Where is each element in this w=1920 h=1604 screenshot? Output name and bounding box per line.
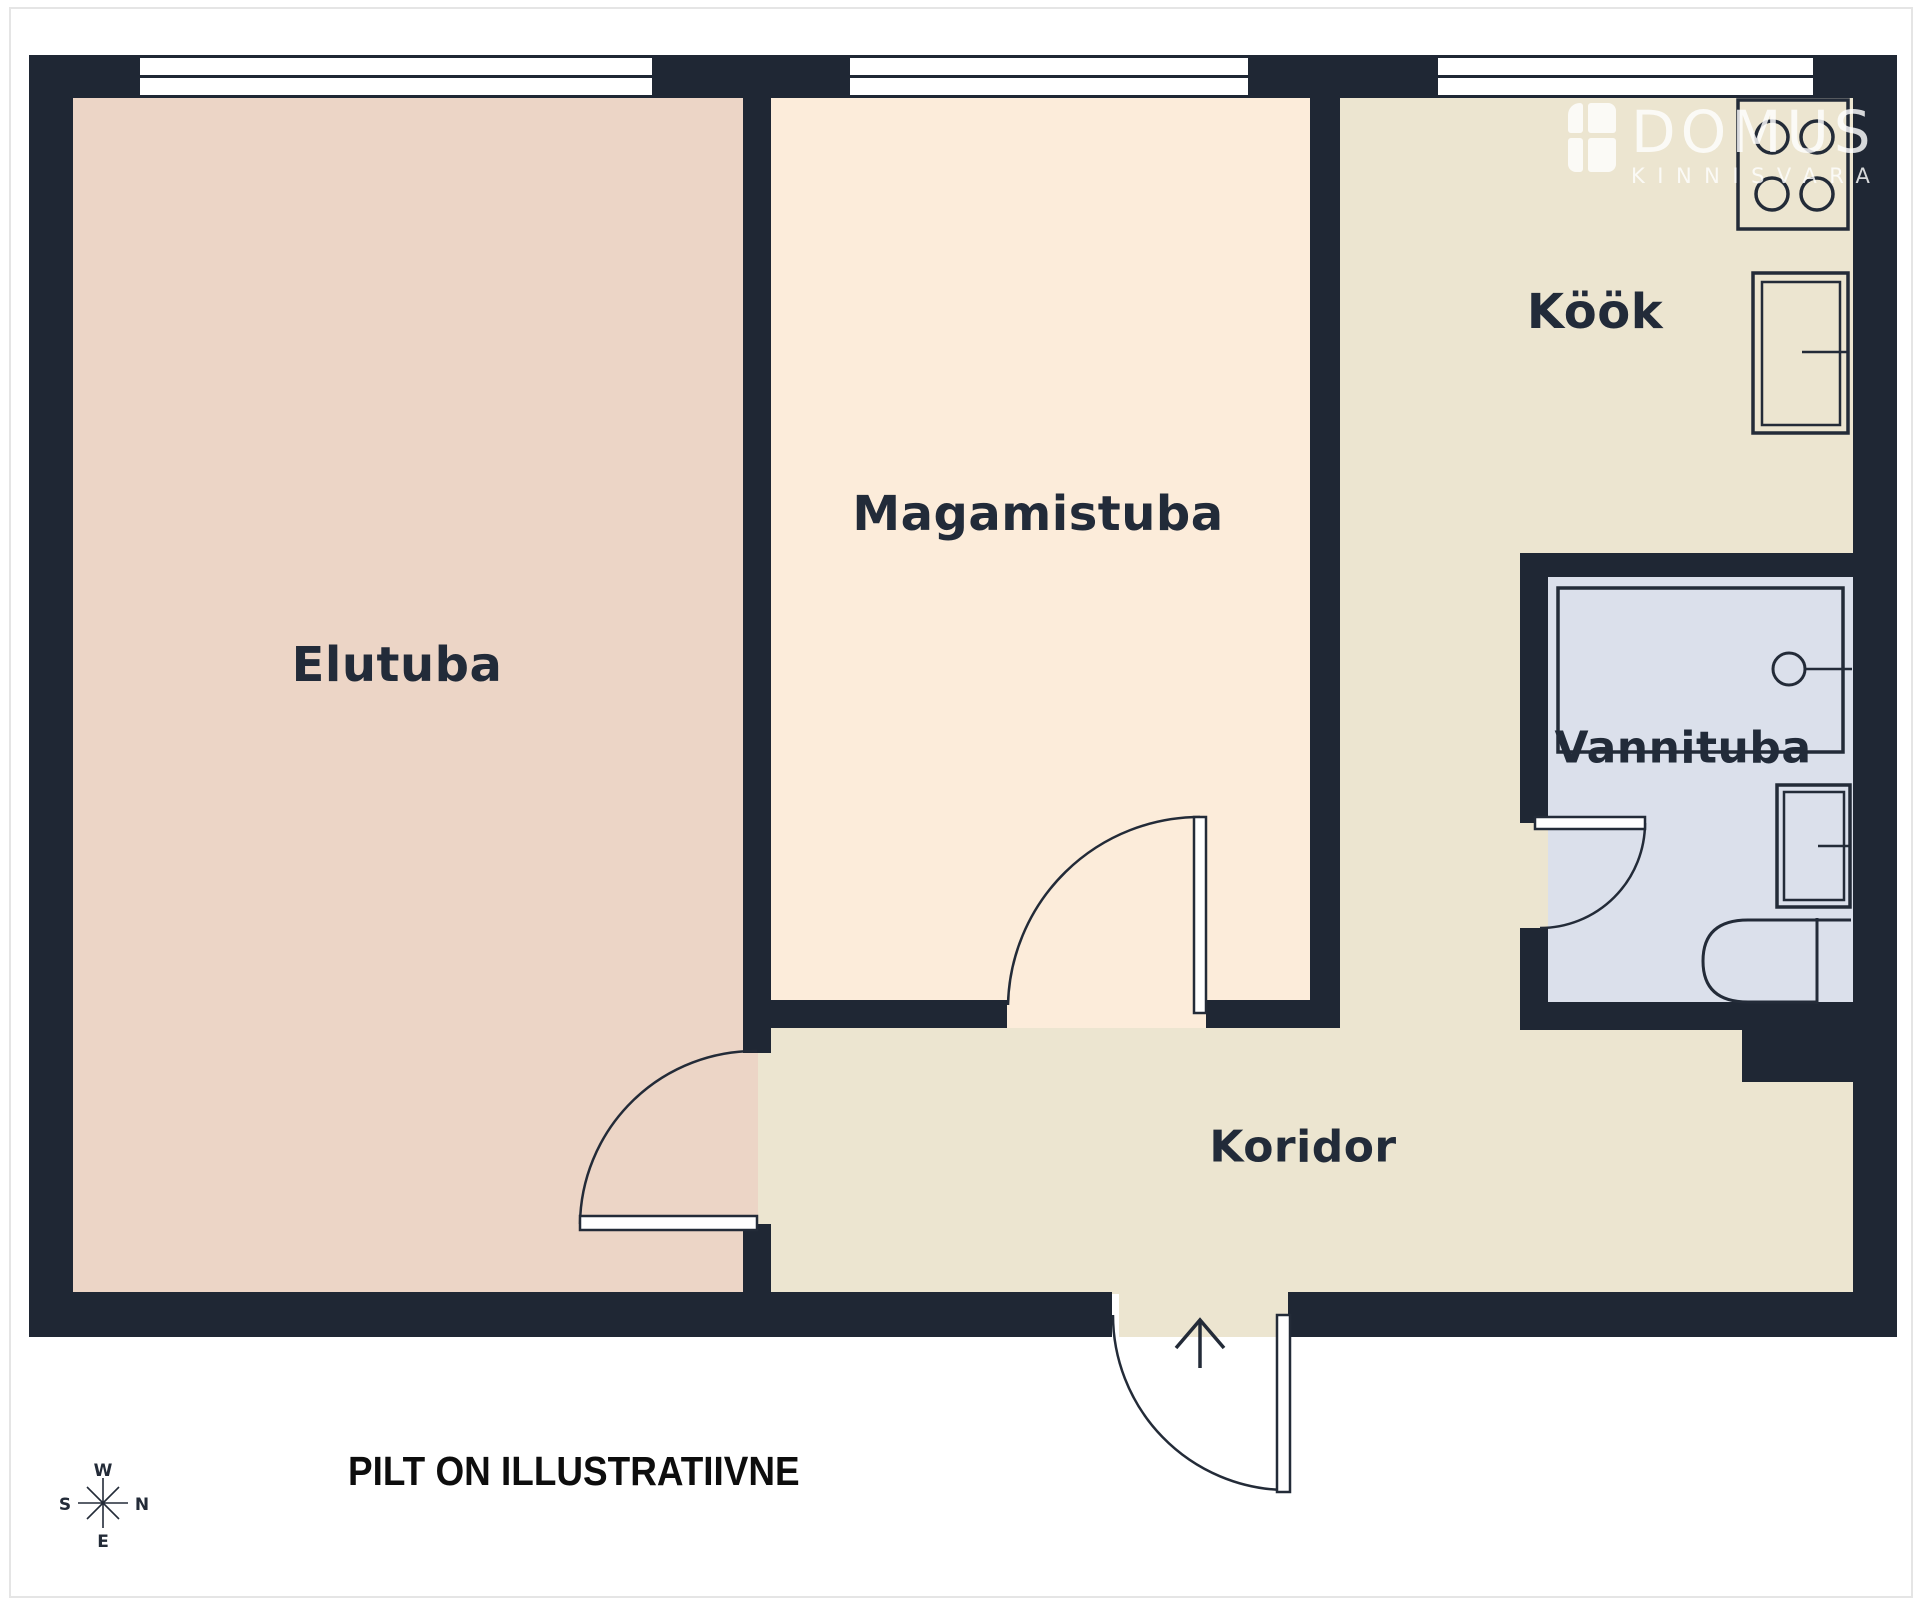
living-room-door (580, 1051, 757, 1230)
stove-icon (1738, 100, 1848, 229)
bathroom-door (1535, 817, 1645, 928)
washing-machine-icon (1777, 785, 1851, 907)
bedroom-door (1008, 817, 1206, 1013)
compass-east-label: E (97, 1532, 109, 1552)
compass-icon (78, 1478, 128, 1528)
compass-south-label: S (59, 1495, 71, 1515)
kitchen-counter-icon (1753, 273, 1848, 433)
entrance-arrow-icon (1176, 1320, 1224, 1368)
floor-plan-page: W N S E Elutuba Magamistuba Köök Vannitu… (0, 0, 1920, 1604)
compass-north-label: N (135, 1495, 149, 1515)
plan-symbols-layer: W N S E (0, 0, 1920, 1604)
compass-west-label: W (94, 1461, 113, 1481)
room-label-vannituba: Vannituba (1554, 723, 1811, 774)
toilet-icon (1703, 918, 1851, 1004)
